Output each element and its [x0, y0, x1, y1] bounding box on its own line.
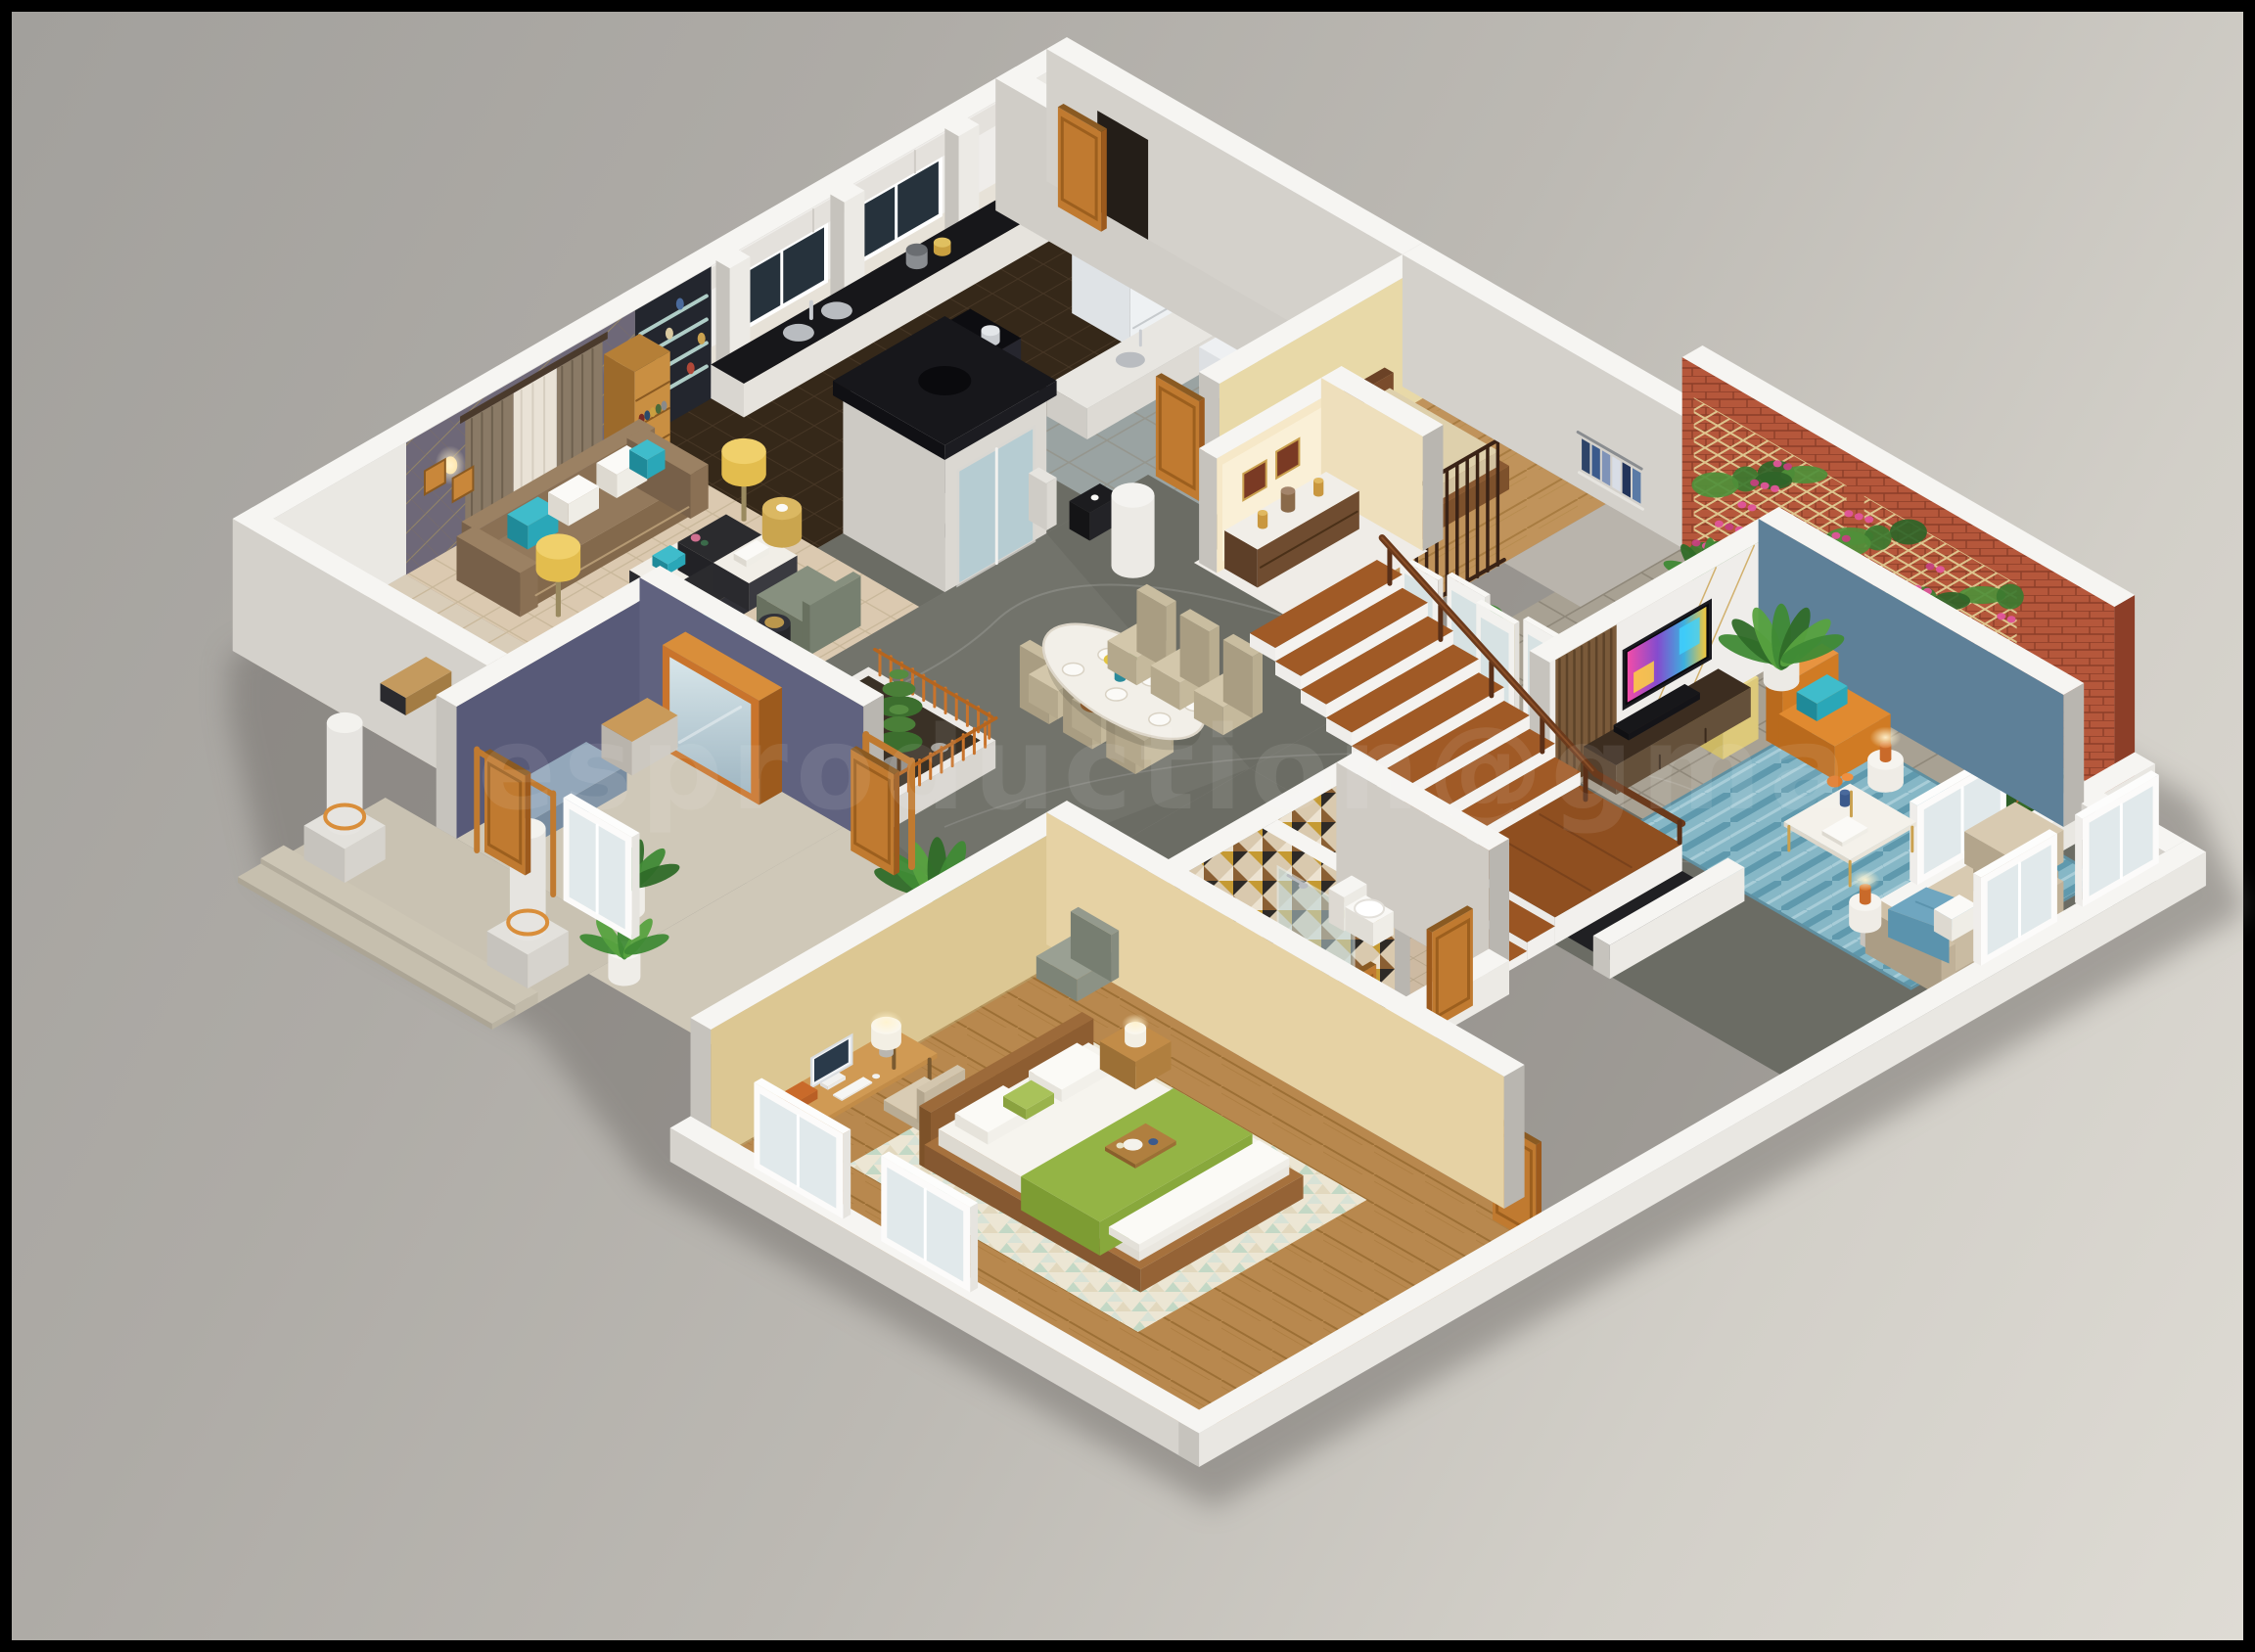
- floorplan-scene: [0, 0, 2255, 1652]
- floorplan-render-frame: esproduction@gma: [0, 0, 2255, 1652]
